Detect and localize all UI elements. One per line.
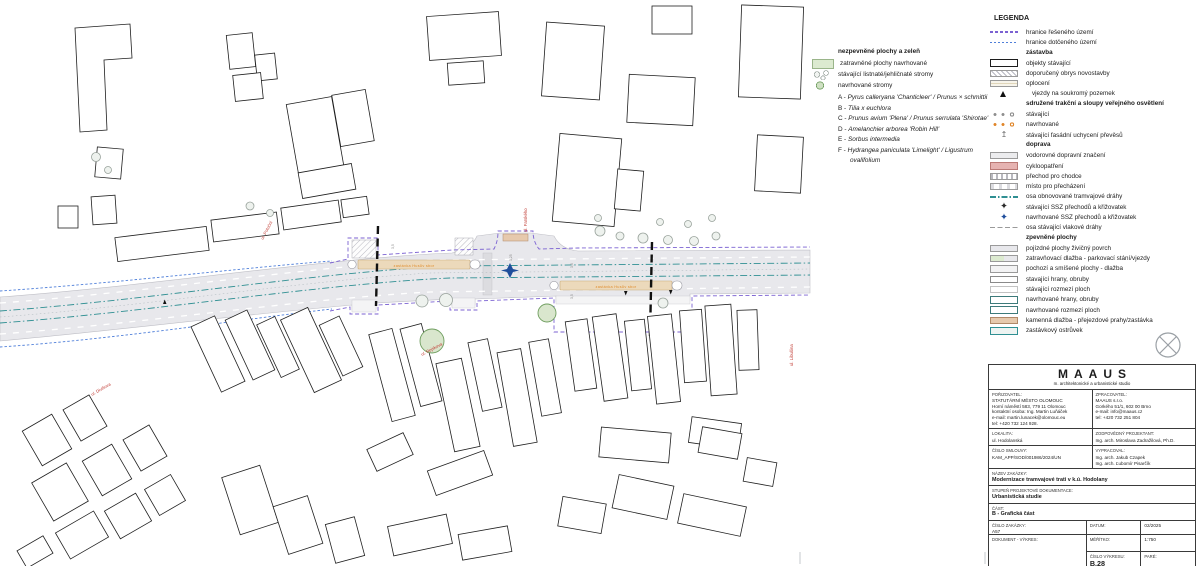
rect-pink-swatch	[990, 162, 1018, 170]
cell-stupen: STUPEŇ PROJEKTOVÉ DOKUMENTACE: Urbanisti…	[989, 486, 1195, 502]
cell-nazev-zakazky: NÁZEV ZAKÁZKY: Modernizace tramvajové tr…	[989, 469, 1195, 485]
legend-row: pochozí a smíšené plochy - dlažba	[990, 264, 1200, 274]
legend-row: doporučený obrys novostavby	[990, 68, 1200, 78]
title-block-bottom: ČÍSLO ZAKÁZKY: A57 DATUM: 02/2025 DOKUME…	[989, 520, 1195, 566]
plant-legend-label: navrhované stromy	[838, 80, 892, 91]
legend-label: stávající fasádní uchycení převěsů	[1026, 132, 1123, 139]
legend-label: navrhované SSZ přechodů a křižovatek	[1026, 214, 1136, 221]
stone-crossing	[503, 234, 528, 241]
cell-datum-label: DATUM:	[1086, 520, 1141, 534]
studio-subtitle: m. architektonické a urbanistické studio	[989, 381, 1195, 387]
plant-legend-row: stávající listnaté/jehličnaté stromy	[812, 69, 990, 80]
svg-text:3,25: 3,25	[509, 254, 513, 261]
cell-vypracoval: VYPRACOVAL: Ing. arch. Jakub Czapek Ing.…	[1092, 446, 1196, 468]
legend-label: stávající rozmezí ploch	[1026, 286, 1090, 293]
rect-edge-new-swatch	[990, 296, 1018, 304]
line-tram-axis-swatch	[990, 196, 1018, 197]
legend-label: hranice řešeného území	[1026, 29, 1094, 36]
legend-row: zatravňovací dlažba - parkovací stání/vj…	[990, 254, 1200, 264]
rect-bound-new-swatch	[990, 306, 1018, 314]
species-name: Prunus avium 'Plena' / Prunus serrulata …	[848, 115, 988, 122]
cell-porizovatel: POŘIZOVATEL: STATUTÁRNÍ MĚSTO OLOMOUC Ho…	[989, 390, 1092, 429]
rect-crossing2-swatch	[990, 183, 1018, 191]
legend-label: stávající	[1026, 111, 1049, 118]
legend-row: místo pro přecházení	[990, 181, 1200, 191]
species-key: F -	[838, 147, 848, 154]
existing-trees-swatch	[812, 69, 832, 80]
cell-datum-value: 02/2025	[1140, 520, 1195, 534]
rect-gray-swatch	[990, 152, 1018, 160]
legend-row: zastávkový ostrůvek	[990, 326, 1200, 336]
legend-label: navrhované hrany, obruby	[1026, 296, 1099, 303]
registration-mark	[1156, 333, 1180, 357]
species-key: E -	[838, 136, 848, 143]
rect-existing-swatch	[990, 59, 1018, 67]
legend-row: navrhované	[990, 120, 1200, 130]
species-name: Amelanchier arborea 'Robin Hill'	[848, 126, 939, 133]
legend-label: navrhované	[1026, 121, 1059, 128]
crop-marks	[800, 552, 985, 564]
title-block: MAAUS m. architektonické a urbanistické …	[988, 364, 1196, 566]
rect-asphalt-swatch	[990, 245, 1018, 253]
legend-label: objekty stávající	[1026, 60, 1071, 67]
legend-section-heading: zpevněné plochy	[1026, 233, 1200, 243]
legend-label: pojízdné plochy živičný povrch	[1026, 245, 1111, 252]
species-item: D - Amelanchier arborea 'Robin Hill'	[838, 125, 990, 135]
drawing-number: B.28	[1090, 561, 1138, 566]
legend-row: stávající fasádní uchycení převěsů	[990, 130, 1200, 140]
legend-label: hranice dotčeného území	[1026, 39, 1097, 46]
legend-label: pochozí a smíšené plochy - dlažba	[1026, 265, 1123, 272]
cell-meritko-value: 1:750	[1140, 534, 1195, 551]
legend-row: oplocení	[990, 78, 1200, 88]
cell-pare: PARÉ:	[1140, 551, 1195, 566]
legend-row: navrhované SSZ přechodů a křižovatek	[990, 212, 1200, 222]
cell-projektant: ZODPOVĚDNÝ PROJEKTANT: Ing. arch. Mirosl…	[1092, 429, 1196, 445]
ssz-exist-swatch	[990, 203, 1018, 211]
legend-label: doporučený obrys novostavby	[1026, 70, 1110, 77]
rect-bound-exist-swatch	[990, 286, 1018, 294]
rect-stone-swatch	[990, 317, 1018, 325]
legend-row: navrhované rozmezí ploch	[990, 305, 1200, 315]
grass-swatch	[812, 59, 834, 69]
street-label: ul. Libušina	[789, 344, 794, 366]
cell-meritko-label: MĚŘÍTKO:	[1086, 534, 1141, 551]
legend-row: cykloopatření	[990, 161, 1200, 171]
svg-text:3,5: 3,5	[570, 294, 574, 299]
legend-label: stávající SSZ přechodů a křižovatek	[1026, 204, 1126, 211]
legend-label: oplocení	[1026, 80, 1050, 87]
triangle-swatch	[1000, 91, 1006, 97]
legend-section-heading: doprava	[1026, 140, 1200, 150]
legend-label: osa stávající vlakové dráhy	[1026, 224, 1102, 231]
dots-orange-swatch	[990, 121, 1018, 128]
legend-row: navrhované hrany, obruby	[990, 295, 1200, 305]
legend-row: stávající	[990, 109, 1200, 119]
ssz-new-swatch	[990, 214, 1018, 222]
legend-title: LEGENDA	[994, 13, 1200, 22]
legend-row: vjezdy na soukromý pozemek	[990, 89, 1200, 99]
proposed-tree-swatch	[812, 80, 832, 91]
species-key: C -	[838, 115, 848, 122]
cell-cislo-vykresu: ČÍSLO VÝKRESU: B.28	[1086, 551, 1141, 566]
cell-cislo-smlouvy: ČÍSLO SMLOUVY: KAM_APP/SOD/001986/2024/U…	[989, 446, 1092, 468]
species-item: F - Hydrangea paniculata 'Limelight' / L…	[838, 146, 990, 165]
plant-legend-rows: zatravněné plochy navrhovanéstávající li…	[812, 58, 990, 91]
plant-legend-label: stávající listnaté/jehličnaté stromy	[838, 69, 933, 80]
legend-label: navrhované rozmezí ploch	[1026, 307, 1100, 314]
legend-rows: hranice řešeného územíhranice dotčeného …	[990, 27, 1200, 336]
species-key: D -	[838, 126, 848, 133]
species-name: Tilia x euchlora	[848, 105, 891, 112]
legend-row: osa stávající vlakové dráhy	[990, 223, 1200, 233]
drawing-sheet: zastávka Husův sbor zastávka Husův sbor	[0, 0, 1200, 566]
plant-legend-label: zatravněné plochy navrhované	[840, 58, 927, 69]
cell-dokument: DOKUMENT - VÝKRES: Husův sbor - nový sta…	[989, 534, 1086, 566]
title-block-header: MAAUS m. architektonické a urbanistické …	[989, 365, 1195, 390]
species-name: Hydrangea paniculata 'Limelight' / Ligus…	[848, 147, 973, 164]
species-key: A -	[838, 94, 848, 101]
legend-label: vjezdy na soukromý pozemek	[1032, 90, 1115, 97]
legend-row: objekty stávající	[990, 58, 1200, 68]
legend-row: hranice řešeného území	[990, 27, 1200, 37]
rect-hatch-swatch	[990, 70, 1018, 78]
line-purple-dash-swatch	[990, 31, 1018, 33]
species-item: C - Prunus avium 'Plena' / Prunus serrul…	[838, 114, 990, 124]
anchor-swatch	[990, 131, 1018, 139]
line-rail-swatch	[990, 227, 1018, 228]
legend-label: osa obnovované tramvajové dráhy	[1026, 193, 1122, 200]
cell-zpracovatel: ZPRACOVATEL: MAAUS s.r.o. Gorkého 51/1, …	[1092, 390, 1196, 429]
cell-lokalita: LOKALITA: ul. Hodolanská	[989, 429, 1092, 445]
street-label: ul. Divišova	[90, 381, 112, 397]
legend-row: stavající hrany, obruby	[990, 274, 1200, 284]
dots-gray-swatch	[990, 111, 1018, 118]
cell-cast: ČÁST: B - Grafická část	[989, 504, 1195, 520]
legend-row: hranice dotčeného území	[990, 37, 1200, 47]
legend-label: zastávkový ostrůvek	[1026, 327, 1083, 334]
plant-legend-title: nezpevněné plochy a zeleň	[838, 46, 990, 57]
stop-label: zastávka Husův sbor	[394, 264, 435, 268]
rect-island-swatch	[990, 327, 1018, 335]
species-name: Pyrus calleryana 'Chanticleer' / Prunus …	[848, 94, 988, 101]
species-item: A - Pyrus calleryana 'Chanticleer' / Pru…	[838, 93, 990, 103]
legend-label: cykloopatření	[1026, 163, 1063, 170]
legend: LEGENDA hranice řešeného územíhranice do…	[990, 13, 1200, 336]
rect-edge-exist-swatch	[990, 276, 1018, 284]
rect-grasspave-swatch	[990, 255, 1018, 263]
legend-row: stávající rozmezí ploch	[990, 284, 1200, 294]
legend-section-heading: zástavba	[1026, 48, 1200, 58]
plant-legend: nezpevněné plochy a zeleň zatravněné plo…	[812, 46, 990, 166]
legend-section-heading: sdružené trakční a sloupy veřejného osvě…	[1026, 99, 1200, 109]
cell-cislo-zakazky: ČÍSLO ZAKÁZKY: A57	[989, 520, 1086, 534]
line-blue-dash-swatch	[990, 42, 1018, 44]
legend-label: přechod pro chodce	[1026, 173, 1082, 180]
rect-paving-swatch	[990, 265, 1018, 273]
legend-label: stavající hrany, obruby	[1026, 276, 1089, 283]
legend-row: vodorovné dopravní značení	[990, 151, 1200, 161]
legend-row: osa obnovované tramvajové dráhy	[990, 192, 1200, 202]
legend-label: kamenná dlažba - přejezdové prahy/zastáv…	[1026, 317, 1153, 324]
legend-row: pojízdné plochy živičný povrch	[990, 243, 1200, 253]
legend-label: zatravňovací dlažba - parkovací stání/vj…	[1026, 255, 1150, 262]
svg-text:3,5: 3,5	[391, 244, 395, 249]
studio-name: MAAUS	[989, 368, 1195, 381]
street-label: ul. Farského	[523, 208, 528, 232]
species-key: B -	[838, 105, 848, 112]
legend-row: stávající SSZ přechodů a křižovatek	[990, 202, 1200, 212]
species-item: B - Tilia x euchlora	[838, 104, 990, 114]
legend-row: kamenná dlažba - přejezdové prahy/zastáv…	[990, 315, 1200, 325]
legend-row: přechod pro chodce	[990, 171, 1200, 181]
legend-label: místo pro přecházení	[1026, 183, 1085, 190]
legend-label: vodorovné dopravní značení	[1026, 152, 1105, 159]
svg-text:3,5: 3,5	[570, 263, 574, 268]
species-list: A - Pyrus calleryana 'Chanticleer' / Pru…	[838, 93, 990, 165]
rect-fence-swatch	[990, 80, 1018, 88]
species-name: Sorbus intermedia	[848, 136, 900, 143]
plant-legend-row: navrhované stromy	[812, 80, 990, 91]
rect-crossing-swatch	[990, 173, 1018, 181]
plant-legend-row: zatravněné plochy navrhované	[812, 58, 990, 69]
species-item: E - Sorbus intermedia	[838, 135, 990, 145]
stop-label: zastávka Husův sbor	[596, 285, 637, 289]
